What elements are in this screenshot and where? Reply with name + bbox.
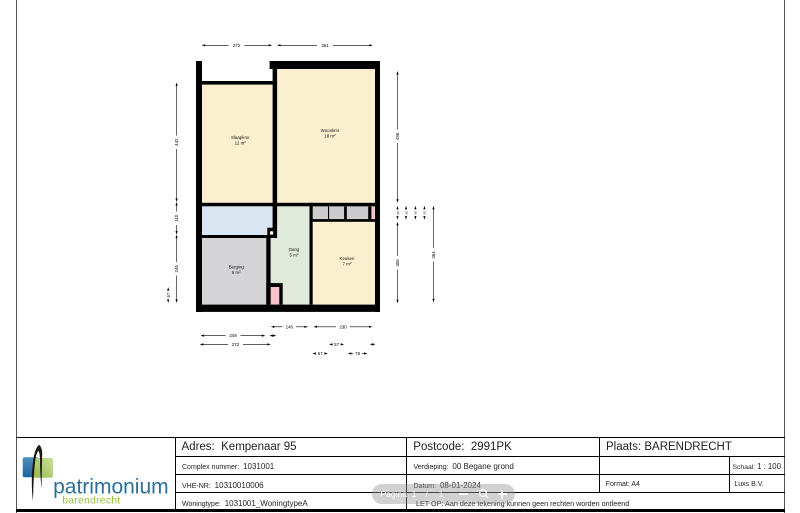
svg-text:248: 248: [229, 333, 237, 338]
svg-text:230: 230: [339, 324, 347, 329]
svg-text:Berging: Berging: [229, 264, 245, 269]
svg-text:Woonkmr: Woonkmr: [321, 128, 340, 133]
svg-text:245: 245: [174, 265, 179, 273]
svg-text:364: 364: [431, 251, 436, 259]
svg-text:496: 496: [395, 132, 400, 140]
svg-text:442: 442: [174, 138, 179, 146]
svg-text:272: 272: [232, 342, 240, 347]
svg-text:Slaapkmr: Slaapkmr: [231, 135, 250, 140]
svg-text:60: 60: [423, 211, 427, 215]
svg-text:57: 57: [318, 351, 323, 356]
svg-text:60: 60: [404, 211, 408, 215]
svg-text:57: 57: [334, 342, 339, 347]
svg-text:60: 60: [414, 211, 418, 215]
svg-text:306: 306: [395, 259, 400, 267]
svg-text:272: 272: [233, 43, 241, 48]
svg-text:146: 146: [286, 324, 294, 329]
svg-text:67: 67: [166, 292, 171, 297]
svg-text:78: 78: [355, 351, 360, 356]
svg-text:110: 110: [174, 214, 179, 222]
svg-text:60: 60: [396, 211, 400, 215]
svg-text:barendrecht: barendrecht: [62, 494, 120, 506]
svg-text:Keuken: Keuken: [340, 256, 355, 261]
svg-text:361: 361: [321, 43, 329, 48]
